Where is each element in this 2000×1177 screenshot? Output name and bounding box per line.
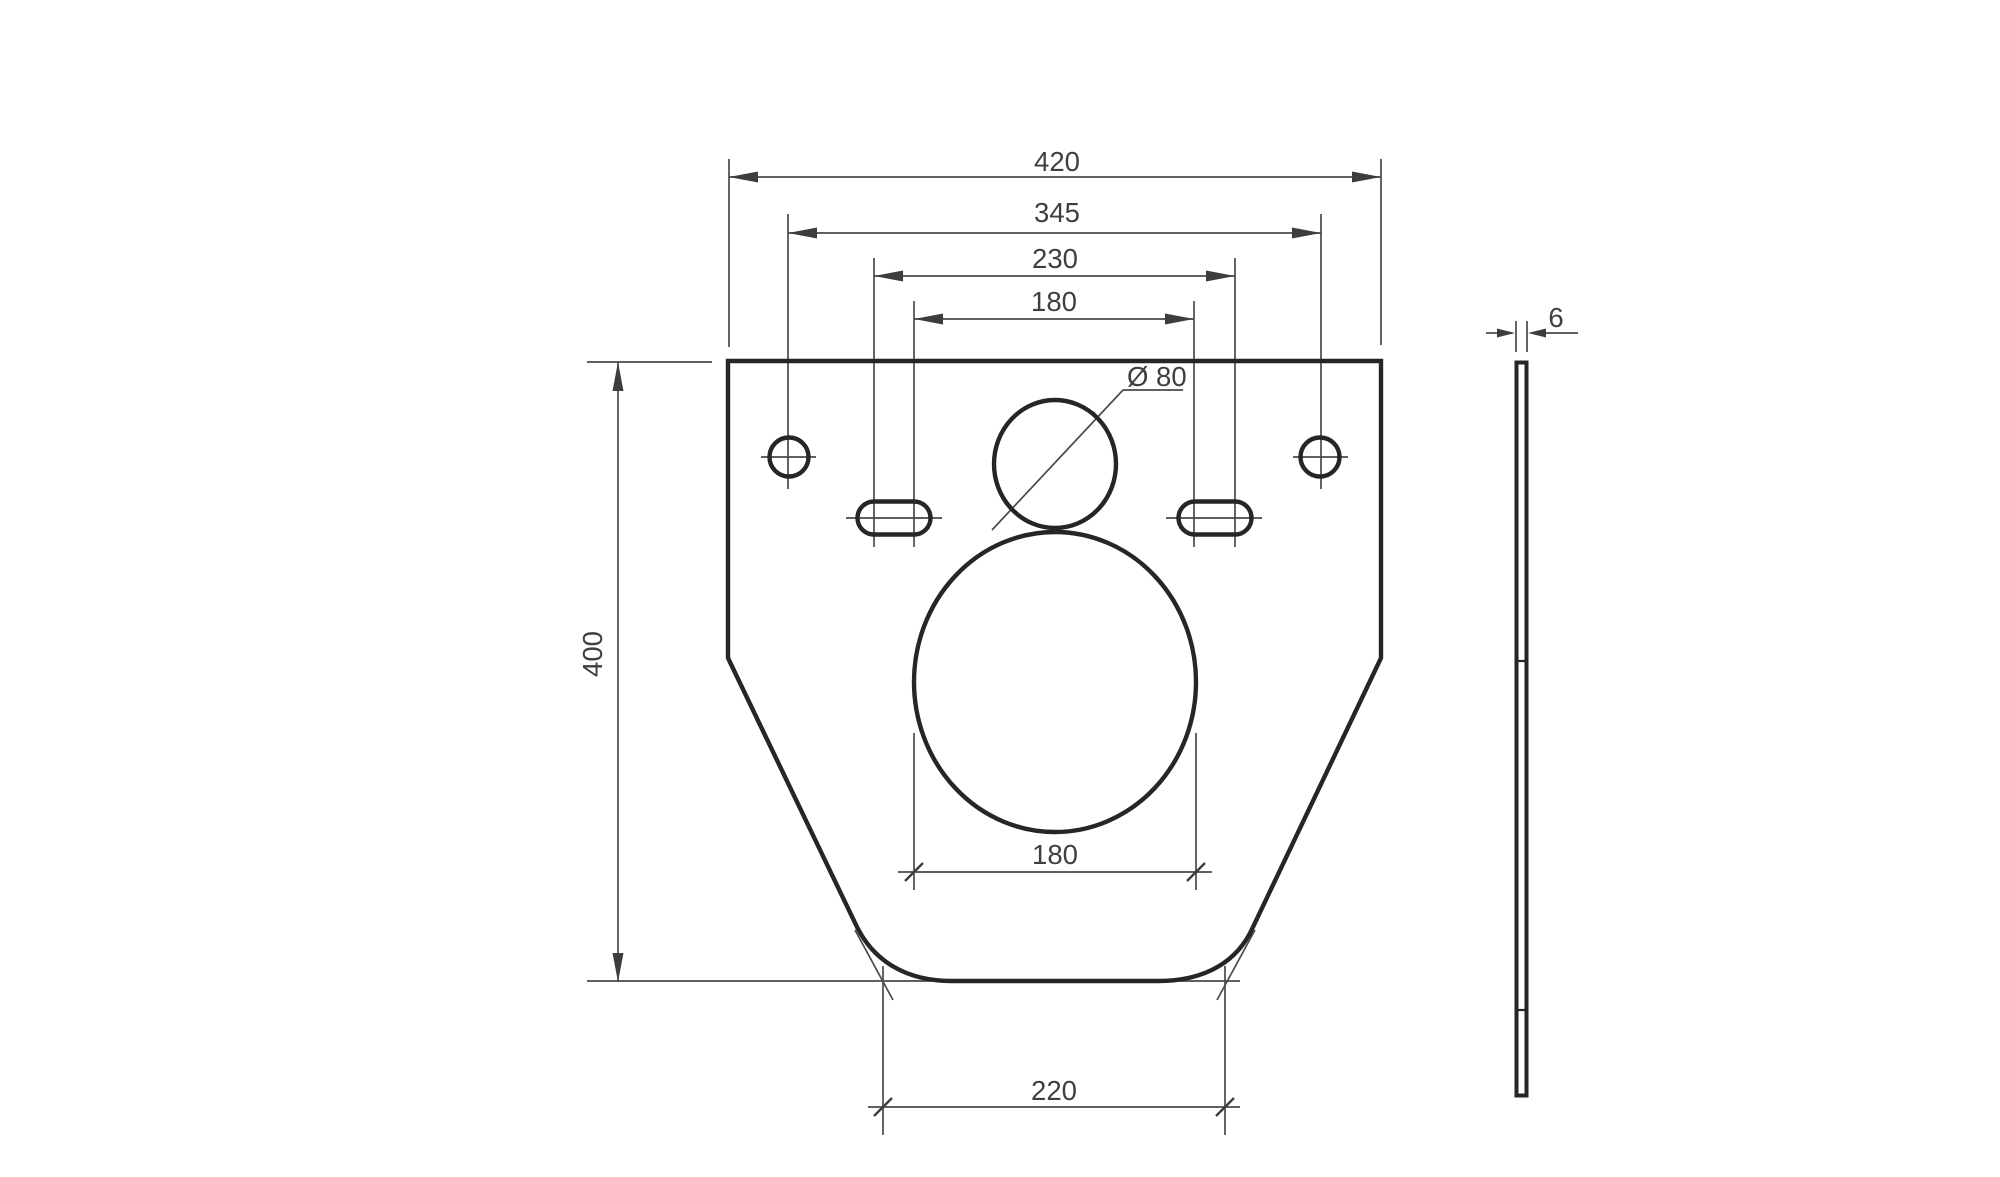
front-view (728, 361, 1381, 981)
dim-label-top-width: 420 (1034, 146, 1080, 177)
arrowhead-180-right (1165, 314, 1194, 325)
arrowheads-layer (613, 172, 1547, 983)
arrowhead-180-left (914, 314, 943, 325)
plate-outline (728, 361, 1381, 981)
dim-label-slot-outer-spacing: 230 (1032, 243, 1078, 274)
side-view-plate (1517, 363, 1527, 1096)
dim-label-hole-spacing: 345 (1034, 197, 1080, 228)
arrowhead-400-bottom (613, 953, 624, 982)
dim-label-bottom-width: 220 (1031, 1075, 1077, 1106)
dim-label-opening-width: 180 (1032, 839, 1078, 870)
dim-label-height: 400 (577, 631, 608, 677)
dim-label-thickness: 6 (1548, 302, 1563, 333)
dimension-lines-layer (587, 159, 1578, 1135)
labels-layer: 420 345 230 180 400 Ø 80 180 220 6 (577, 146, 1564, 1106)
side-view (1515, 363, 1529, 1096)
drawing-canvas: 420 345 230 180 400 Ø 80 180 220 6 (0, 0, 2000, 1177)
arrowhead-230-right (1206, 271, 1235, 282)
arrowhead-420-right (1352, 172, 1381, 183)
large-opening-circle (914, 532, 1196, 832)
arrowhead-345-right (1292, 228, 1321, 239)
arrowhead-6-left (1497, 329, 1515, 338)
arrowhead-420-left (729, 172, 758, 183)
small-opening-circle (994, 400, 1116, 528)
technical-drawing: 420 345 230 180 400 Ø 80 180 220 6 (0, 0, 2000, 1177)
arrowhead-230-left (874, 271, 903, 282)
dim-label-small-opening-diameter: Ø 80 (1127, 361, 1187, 392)
arrowhead-6-right (1528, 329, 1546, 338)
dim-label-slot-inner-spacing: 180 (1031, 286, 1077, 317)
arrowhead-345-left (788, 228, 817, 239)
arrowhead-400-top (613, 362, 624, 391)
